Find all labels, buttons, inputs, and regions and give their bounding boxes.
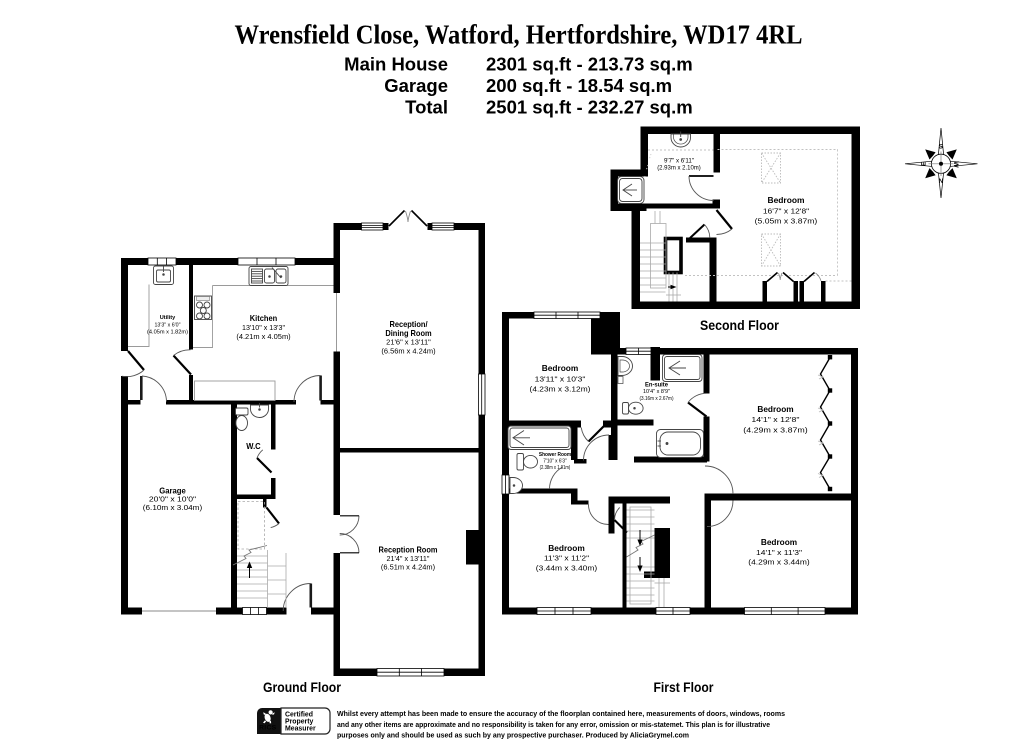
svg-text:(2.93m x 2.10m): (2.93m x 2.10m) — [657, 165, 701, 171]
svg-text:W: W — [952, 161, 959, 168]
svg-text:Wrensfield Close, Watford, Her: Wrensfield Close, Watford, Hertfordshire… — [235, 19, 803, 50]
svg-text:Kitchen: Kitchen — [250, 313, 278, 323]
svg-text:9'7" x 6'11": 9'7" x 6'11" — [664, 159, 694, 165]
svg-text:Bedroom: Bedroom — [761, 537, 797, 547]
svg-text:Second Floor: Second Floor — [700, 317, 779, 333]
svg-text:13'3" x 6'0": 13'3" x 6'0" — [155, 322, 181, 328]
svg-text:Bedroom: Bedroom — [768, 195, 805, 205]
svg-text:13'10" x 13'3": 13'10" x 13'3" — [242, 323, 285, 332]
svg-text:purposes only and should be us: purposes only and should be used as such… — [337, 733, 689, 740]
svg-text:(6.51m x 4.24m): (6.51m x 4.24m) — [381, 563, 435, 572]
svg-text:14'1" x 11'3": 14'1" x 11'3" — [756, 548, 802, 557]
svg-text:(3.44m x 3.40m): (3.44m x 3.40m) — [536, 563, 597, 572]
svg-text:(3.16m x 2.67m): (3.16m x 2.67m) — [640, 396, 674, 402]
svg-text:7'10" x 6'3": 7'10" x 6'3" — [543, 458, 566, 464]
svg-text:(5.05m x 3.87m): (5.05m x 3.87m) — [755, 217, 818, 226]
svg-text:13'11" x 10'3": 13'11" x 10'3" — [535, 374, 586, 383]
svg-text:Main House: Main House — [344, 54, 448, 75]
svg-text:10'4" x 8'9": 10'4" x 8'9" — [643, 389, 670, 395]
svg-text:W.C: W.C — [246, 441, 260, 451]
svg-text:Bedroom: Bedroom — [542, 363, 579, 373]
svg-text:Measurer: Measurer — [285, 726, 316, 733]
svg-text:(4.23m x 3.12m): (4.23m x 3.12m) — [530, 385, 591, 394]
svg-text:Whilst every attempt has been: Whilst every attempt has been made to en… — [337, 711, 785, 718]
svg-text:(4.05m x 1.82m): (4.05m x 1.82m) — [147, 330, 188, 336]
svg-text:11'3" x 11'2": 11'3" x 11'2" — [544, 553, 590, 562]
svg-text:Utility: Utility — [160, 315, 176, 321]
svg-text:(6.56m x 4.24m): (6.56m x 4.24m) — [381, 347, 435, 356]
svg-text:(6.10m x 3.04m): (6.10m x 3.04m) — [143, 503, 202, 512]
svg-text:and any other items are approx: and any other items are approximate and … — [337, 722, 770, 729]
svg-text:(4.29m x 3.44m): (4.29m x 3.44m) — [748, 558, 809, 567]
svg-text:200 sq.ft - 18.54 sq.m: 200 sq.ft - 18.54 sq.m — [486, 75, 672, 96]
svg-text:21'4" x 13'11": 21'4" x 13'11" — [387, 554, 430, 563]
svg-text:E: E — [920, 161, 927, 166]
svg-text:Bedroom: Bedroom — [757, 404, 793, 414]
svg-text:Ground Floor: Ground Floor — [263, 679, 341, 695]
svg-text:N: N — [939, 178, 944, 185]
svg-text:2301 sq.ft - 213.73 sq.m: 2301 sq.ft - 213.73 sq.m — [486, 54, 693, 75]
svg-text:2501 sq.ft - 232.27 sq.m: 2501 sq.ft - 232.27 sq.m — [486, 97, 693, 118]
svg-text:First Floor: First Floor — [654, 679, 714, 695]
svg-text:16'7" x 12'8": 16'7" x 12'8" — [763, 207, 810, 216]
svg-text:Certified: Certified — [285, 712, 313, 719]
svg-text:RICS: RICS — [259, 725, 277, 732]
svg-text:Bedroom: Bedroom — [548, 543, 585, 553]
svg-text:14'1" x 12'8": 14'1" x 12'8" — [751, 415, 800, 424]
svg-text:(4.21m x 4.05m): (4.21m x 4.05m) — [236, 332, 290, 341]
svg-text:Garage: Garage — [384, 75, 448, 96]
svg-text:(2.38m x 1.91m): (2.38m x 1.91m) — [540, 465, 571, 471]
svg-text:21'6" x 13'11": 21'6" x 13'11" — [386, 338, 431, 347]
svg-text:Shower Room: Shower Room — [539, 452, 571, 458]
svg-text:Total: Total — [405, 97, 448, 118]
svg-text:(4.29m x 3.87m): (4.29m x 3.87m) — [743, 426, 808, 435]
svg-text:S: S — [939, 144, 944, 151]
svg-text:Property: Property — [285, 719, 314, 726]
svg-text:En-suite: En-suite — [645, 381, 669, 388]
